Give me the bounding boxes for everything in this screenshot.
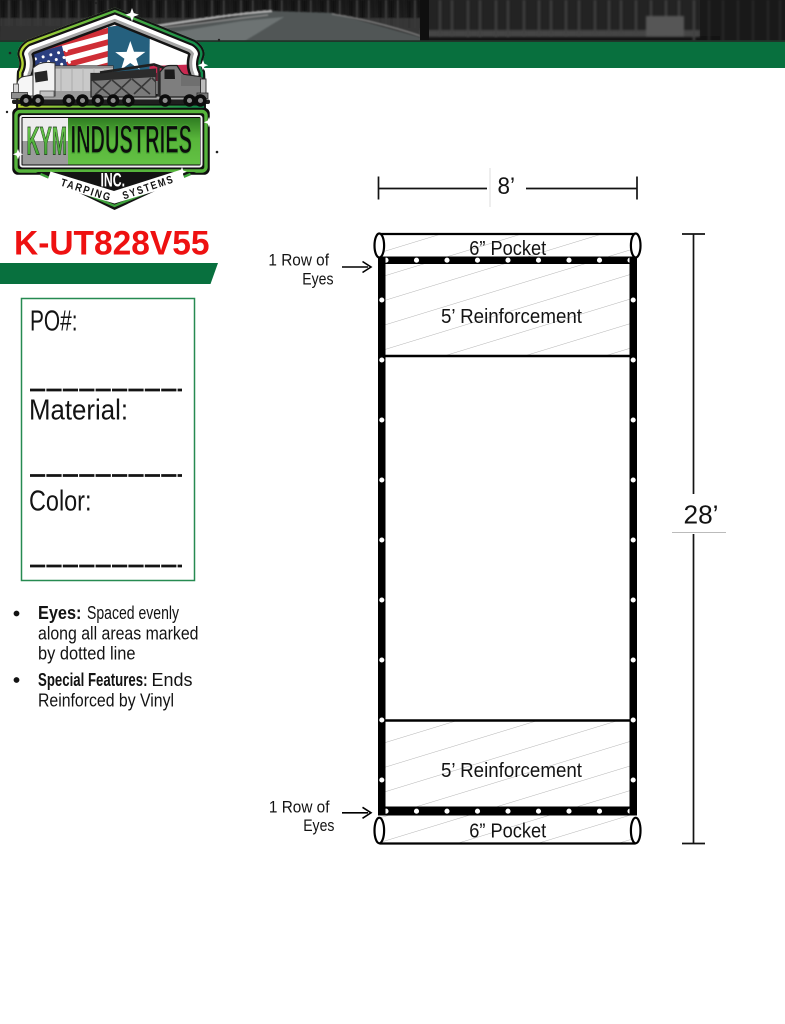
svg-text:Spaced evenly: Spaced evenly: [87, 603, 179, 623]
svg-text:INDUSTRIES: INDUSTRIES: [71, 118, 193, 162]
svg-text:INC.: INC.: [101, 171, 126, 192]
svg-text:8’: 8’: [498, 173, 516, 200]
svg-text:by dotted line: by dotted line: [38, 644, 136, 664]
svg-text:1 Row of: 1 Row of: [269, 798, 330, 817]
svg-text:1 Row of: 1 Row of: [268, 251, 329, 270]
svg-text:KYM: KYM: [27, 119, 68, 163]
svg-text:Material:: Material:: [29, 395, 128, 427]
svg-text:6” Pocket: 6” Pocket: [469, 820, 546, 843]
svg-text:along all areas marked: along all areas marked: [38, 623, 199, 643]
svg-text:Reinforced by Vinyl: Reinforced by Vinyl: [38, 690, 174, 710]
svg-text:Eyes: Eyes: [303, 816, 334, 835]
svg-text:PO#:: PO#:: [30, 306, 78, 338]
svg-text:5’ Reinforcement: 5’ Reinforcement: [441, 305, 582, 328]
svg-text:Eyes: Eyes: [302, 270, 333, 289]
svg-text:Color:: Color:: [29, 486, 92, 518]
svg-text:Eyes:: Eyes:: [38, 603, 82, 623]
svg-text:Special Features:: Special Features:: [38, 670, 148, 690]
svg-text:28’: 28’: [684, 502, 719, 530]
svg-text:5’ Reinforcement: 5’ Reinforcement: [441, 759, 582, 782]
svg-text:K-UT828V55: K-UT828V55: [14, 225, 210, 263]
svg-text:Ends: Ends: [152, 670, 193, 690]
